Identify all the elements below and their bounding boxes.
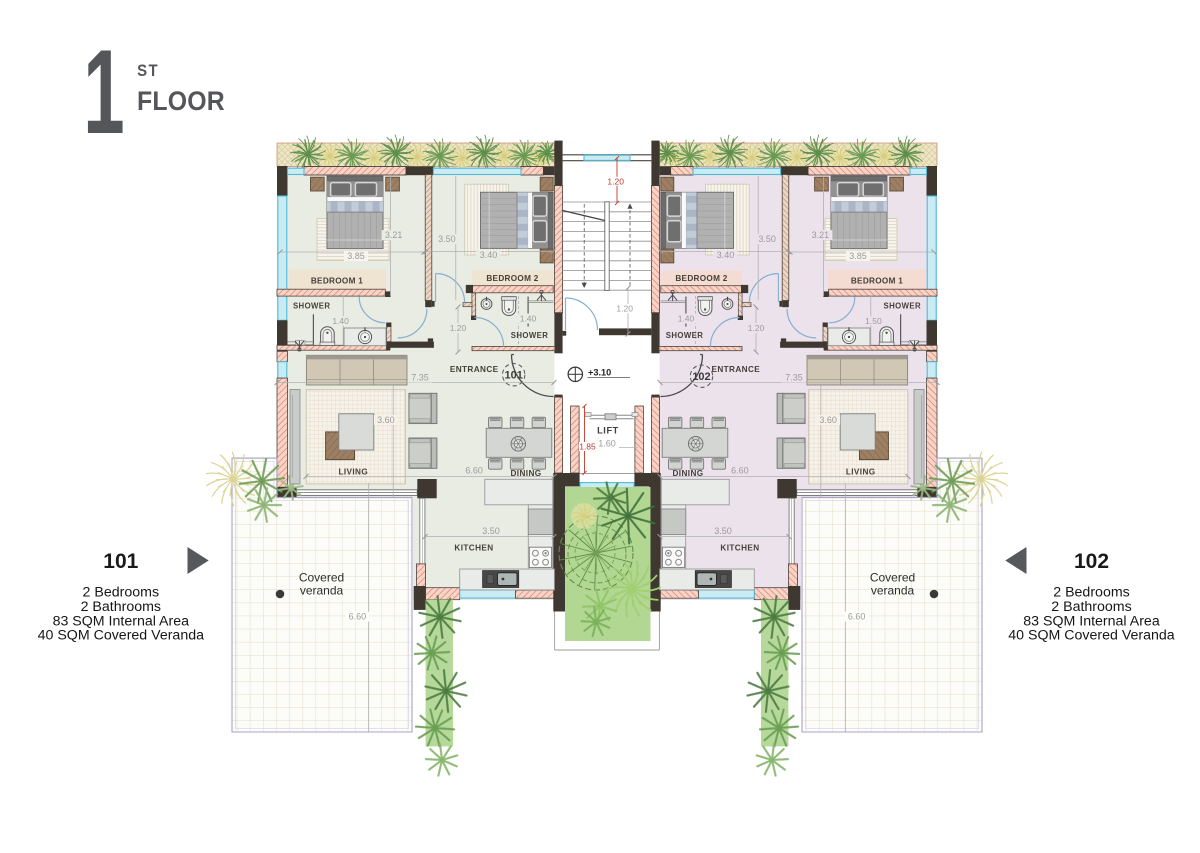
svg-text:BEDROOM 2: BEDROOM 2: [486, 274, 538, 283]
svg-text:ENTRANCE: ENTRANCE: [711, 365, 760, 374]
svg-text:7.35: 7.35: [411, 373, 429, 383]
svg-text:SHOWER: SHOWER: [666, 331, 704, 340]
svg-text:40 SQM Covered Veranda: 40 SQM Covered Veranda: [1008, 628, 1175, 644]
svg-text:1.20: 1.20: [607, 176, 624, 186]
svg-text:SHOWER: SHOWER: [511, 331, 549, 340]
svg-text:FLOOR: FLOOR: [137, 87, 225, 116]
svg-text:BEDROOM 1: BEDROOM 1: [311, 276, 363, 285]
svg-text:3.21: 3.21: [812, 230, 830, 240]
svg-text:3.40: 3.40: [717, 250, 735, 260]
svg-text:1.85: 1.85: [579, 442, 596, 452]
svg-text:3.50: 3.50: [438, 234, 456, 244]
svg-text:3.40: 3.40: [480, 250, 498, 260]
svg-text:7.35: 7.35: [785, 373, 803, 383]
svg-text:+3.10: +3.10: [588, 368, 611, 378]
svg-text:SHOWER: SHOWER: [884, 302, 922, 311]
svg-text:veranda: veranda: [871, 584, 915, 598]
svg-text:DINING: DINING: [510, 469, 541, 478]
svg-text:40 SQM Covered Veranda: 40 SQM Covered Veranda: [38, 628, 205, 644]
svg-text:6.60: 6.60: [349, 612, 367, 622]
svg-text:SHOWER: SHOWER: [293, 302, 331, 311]
svg-text:102: 102: [692, 371, 710, 383]
svg-text:3.50: 3.50: [714, 526, 732, 536]
svg-text:6.60: 6.60: [465, 466, 483, 476]
svg-text:Covered: Covered: [299, 571, 344, 585]
svg-text:1.20: 1.20: [616, 304, 633, 314]
svg-text:3.60: 3.60: [377, 415, 395, 425]
svg-text:ST: ST: [137, 62, 159, 80]
svg-text:1.20: 1.20: [748, 323, 765, 333]
svg-text:LIVING: LIVING: [846, 468, 876, 477]
svg-text:6.60: 6.60: [848, 612, 866, 622]
svg-text:BEDROOM 1: BEDROOM 1: [851, 276, 903, 285]
svg-text:3.60: 3.60: [819, 415, 837, 425]
svg-text:3.50: 3.50: [758, 234, 776, 244]
svg-text:veranda: veranda: [300, 584, 344, 598]
svg-text:1.60: 1.60: [598, 439, 616, 449]
svg-text:1.20: 1.20: [450, 323, 467, 333]
svg-text:3.85: 3.85: [849, 251, 867, 261]
svg-text:LIFT: LIFT: [597, 425, 619, 435]
svg-text:1.40: 1.40: [520, 314, 537, 324]
svg-text:102: 102: [1074, 550, 1109, 573]
svg-text:KITCHEN: KITCHEN: [454, 543, 493, 552]
svg-text:1.40: 1.40: [678, 314, 695, 324]
svg-text:101: 101: [505, 370, 523, 382]
svg-text:3.21: 3.21: [385, 230, 403, 240]
svg-text:1.40: 1.40: [332, 316, 349, 326]
svg-text:3.50: 3.50: [482, 526, 500, 536]
svg-text:Covered: Covered: [870, 571, 915, 585]
svg-text:LIVING: LIVING: [338, 468, 368, 477]
svg-text:3.85: 3.85: [347, 251, 365, 261]
svg-text:ENTRANCE: ENTRANCE: [450, 365, 499, 374]
svg-text:KITCHEN: KITCHEN: [720, 543, 759, 552]
svg-text:1.50: 1.50: [865, 316, 882, 326]
svg-text:6.60: 6.60: [731, 466, 749, 476]
svg-text:1: 1: [83, 26, 124, 159]
svg-text:BEDROOM 2: BEDROOM 2: [675, 274, 727, 283]
svg-text:101: 101: [103, 550, 138, 573]
svg-text:DINING: DINING: [672, 469, 703, 478]
